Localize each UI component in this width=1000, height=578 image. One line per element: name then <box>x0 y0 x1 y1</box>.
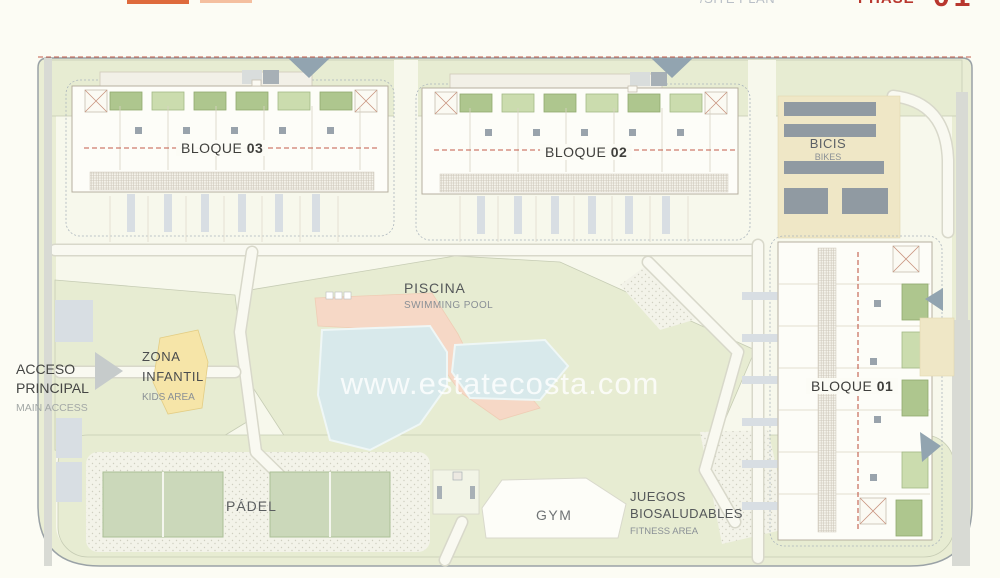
bloque-03-label: BLOQUE 03 <box>176 140 268 156</box>
kids-area-label: ZONA INFANTIL KIDS AREA <box>142 347 204 408</box>
site-plan-title-fragment: /SITE PLAN <box>700 0 775 6</box>
bikes-label: BICIS BIKES <box>804 138 852 163</box>
crosswalk <box>56 462 82 502</box>
bike-parking-area <box>778 96 900 238</box>
bloque-02-label: BLOQUE 02 <box>540 144 632 160</box>
west-road <box>44 58 52 566</box>
fitness-area-label: JUEGOS BIOSALUDABLES FITNESS AREA <box>630 488 743 540</box>
bike-rack <box>784 102 876 116</box>
phase-number-fragment: 01 <box>933 0 974 14</box>
gym-label: GYM <box>536 507 572 523</box>
east-road-south <box>952 320 970 566</box>
watermark-text: www.estatecosta.com <box>341 366 660 402</box>
bike-rack <box>842 188 888 214</box>
brand-logo-fragment-2 <box>200 0 252 3</box>
east-road-north <box>956 92 968 322</box>
site-plan-page: /SITE PLAN PHASE 01 <box>0 0 1000 578</box>
crosswalk <box>56 418 82 458</box>
swimming-pool-label: PISCINA SWIMMING POOL <box>404 280 493 311</box>
bloque-01-label: BLOQUE 01 <box>806 378 898 394</box>
main-access-label: ACCESO PRINCIPAL MAIN ACCESS <box>16 360 89 418</box>
master-plan-drawing <box>0 0 1000 578</box>
bike-rack <box>784 188 828 214</box>
brand-logo-fragment <box>127 0 189 4</box>
crosswalk <box>55 300 93 342</box>
padel-label: PÁDEL <box>226 498 277 514</box>
pool-steps <box>326 292 351 299</box>
phase-label-fragment: PHASE <box>858 0 915 7</box>
